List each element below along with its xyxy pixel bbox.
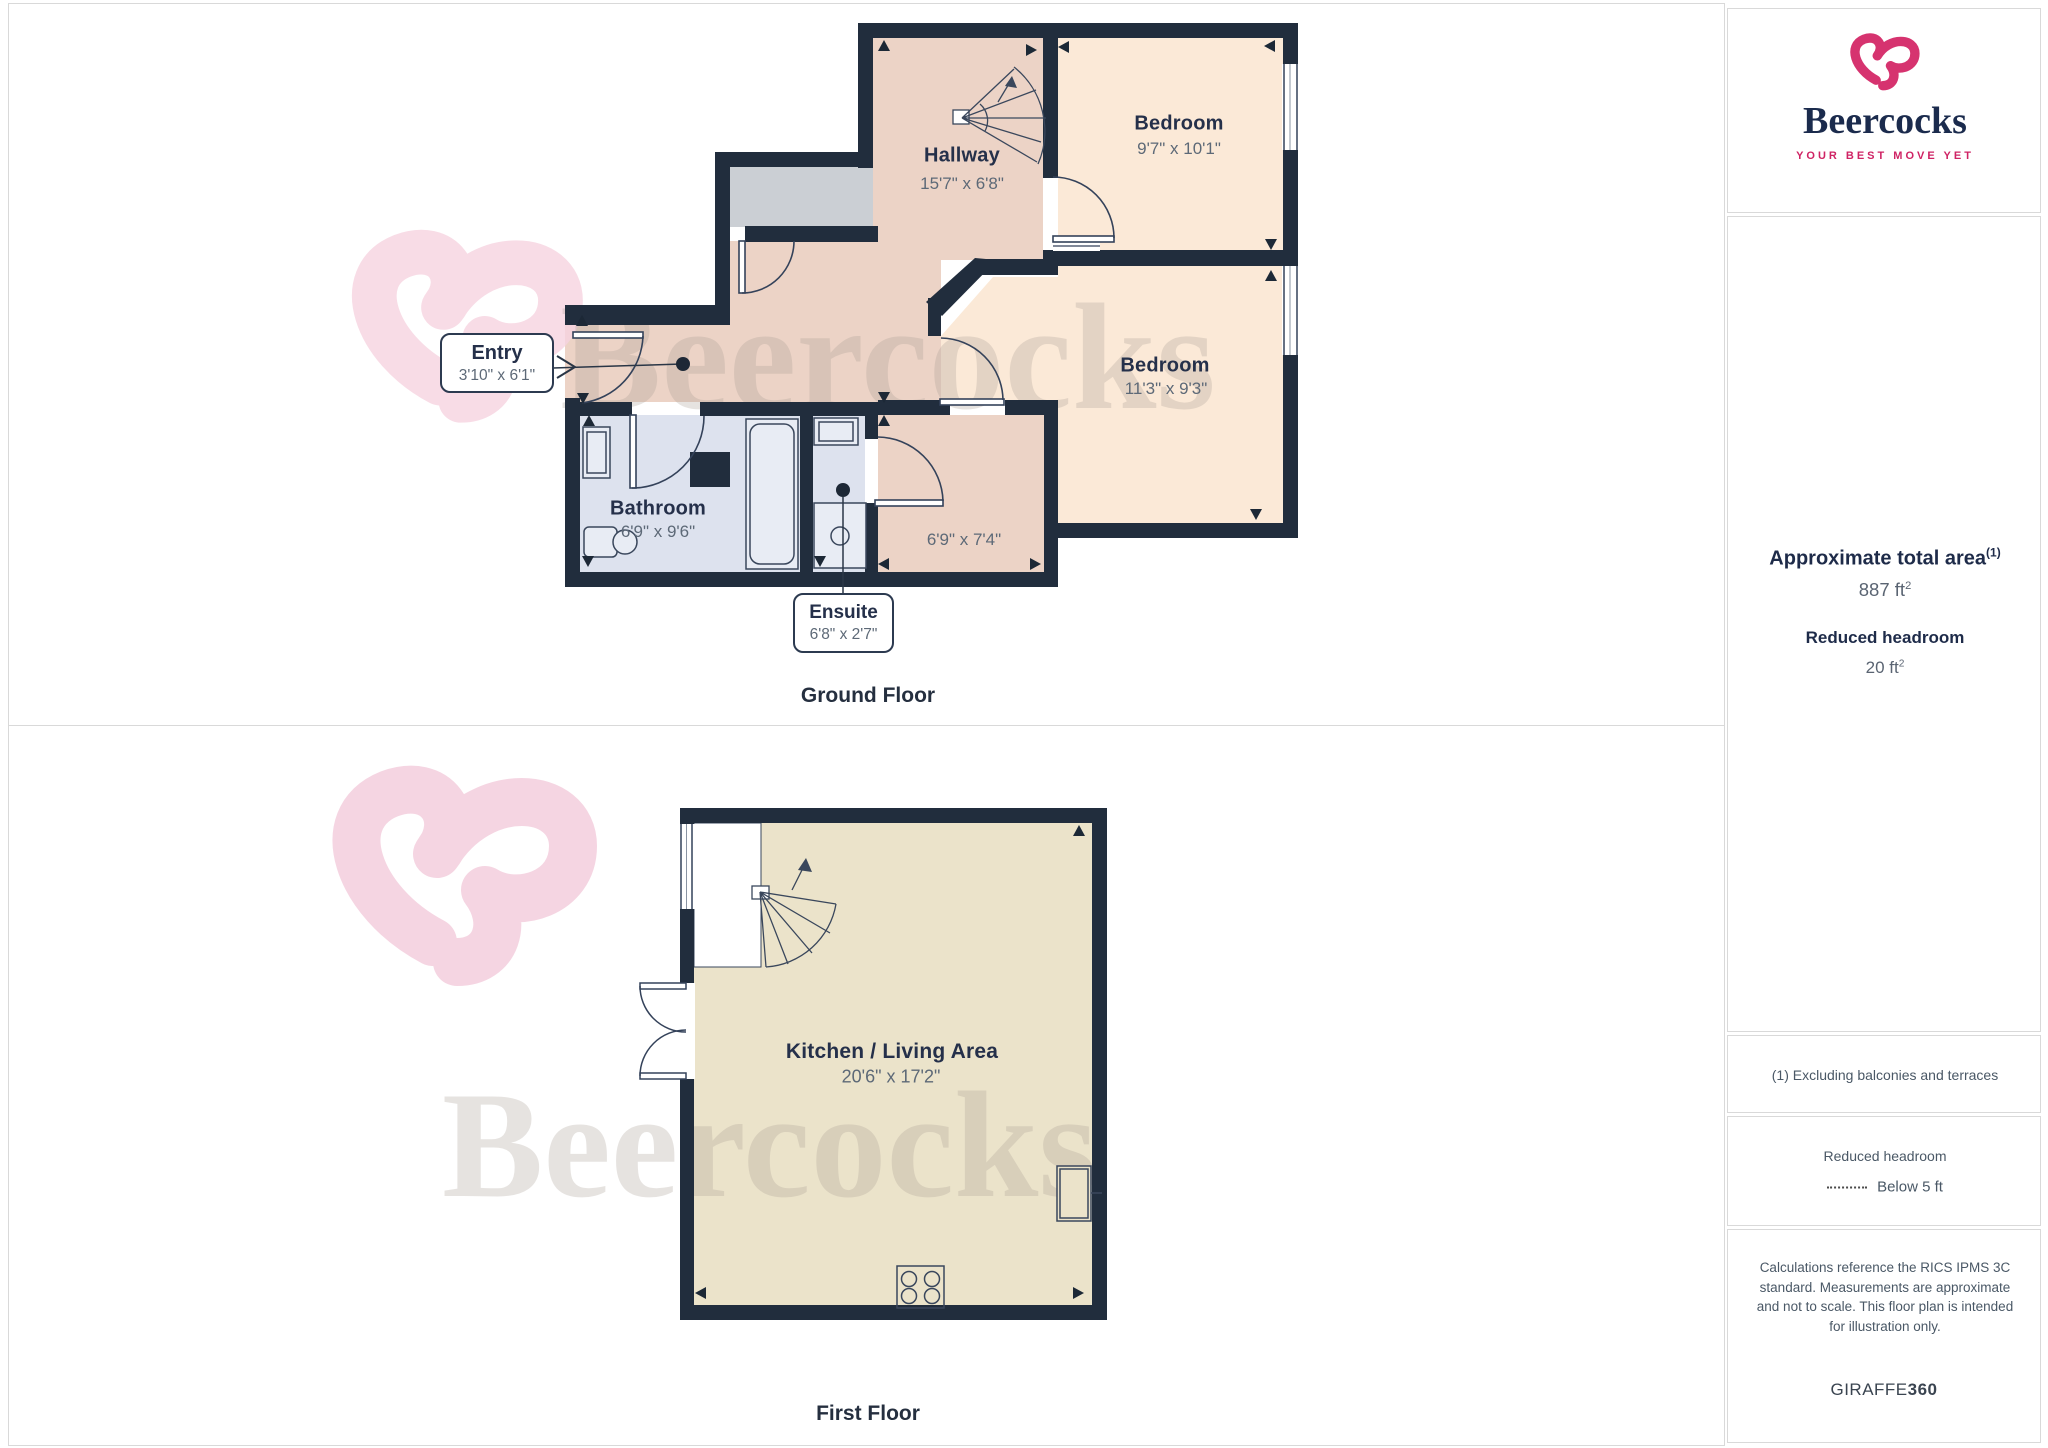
watermark-heart-icon bbox=[357, 790, 573, 962]
reduced-headroom-title: Reduced headroom bbox=[1806, 628, 1965, 648]
entry-callout: Entry 3'10" x 6'1" bbox=[440, 333, 554, 393]
lobby-dims: 6'9" x 7'4" bbox=[927, 530, 1001, 550]
entry-anchor-dot bbox=[676, 357, 690, 371]
first-floor-title: First Floor bbox=[816, 1402, 920, 1426]
total-area-value: 887 ft2 bbox=[1859, 579, 1911, 601]
toilet-icon bbox=[584, 527, 617, 557]
legend-row: Below 5 ft bbox=[1827, 1179, 1943, 1196]
sidebar-logo-panel: Beercocks YOUR BEST MOVE YET bbox=[1727, 8, 2041, 213]
entry-callout-dims: 3'10" x 6'1" bbox=[459, 366, 535, 385]
floorplan-page: { "brand": { "name": "Beercocks", "tagli… bbox=[0, 0, 2048, 1448]
hallway-label: Hallway bbox=[924, 145, 1000, 168]
ground-floor-plan: Beercocks bbox=[374, 23, 1299, 593]
hallway-dims: 15'7" x 6'8" bbox=[920, 174, 1004, 194]
ensuite-callout: Ensuite 6'8" x 2'7" bbox=[793, 593, 894, 653]
footnote-text: (1) Excluding balconies and terraces bbox=[1772, 1067, 1998, 1083]
bedroom2-dims: 11'3" x 9'3" bbox=[1125, 379, 1208, 399]
watermark-text: Beercocks bbox=[560, 273, 1216, 441]
brand-tagline: YOUR BEST MOVE YET bbox=[1796, 150, 1974, 162]
stairwell bbox=[694, 823, 761, 967]
bathtub-icon bbox=[746, 419, 798, 569]
beercocks-logo-icon bbox=[1839, 27, 1931, 99]
legend-title: Reduced headroom bbox=[1824, 1148, 1947, 1164]
sidebar-footnote-panel: (1) Excluding balconies and terraces bbox=[1727, 1035, 2041, 1113]
legend-label: Below 5 ft bbox=[1877, 1179, 1943, 1196]
giraffe360-credit: GIRAFFE360 bbox=[1830, 1380, 1937, 1400]
kitchen-living-dims: 20'6" x 17'2" bbox=[842, 1067, 941, 1088]
bathroom-dims: 6'9" x 9'6" bbox=[621, 522, 695, 542]
sidebar-legend-panel: Reduced headroom Below 5 ft bbox=[1727, 1116, 2041, 1226]
ensuite-callout-label: Ensuite bbox=[809, 601, 878, 625]
bedroom1-dims: 9'7" x 10'1" bbox=[1137, 139, 1221, 159]
ensuite-anchor-dot bbox=[836, 483, 850, 497]
reduced-headroom-value: 20 ft2 bbox=[1866, 658, 1905, 678]
ground-floor-title: Ground Floor bbox=[801, 684, 935, 708]
bedroom2-label: Bedroom bbox=[1120, 355, 1209, 378]
appliance-icon bbox=[1057, 1166, 1091, 1221]
total-area-title: Approximate total area(1) bbox=[1769, 546, 2000, 571]
footnote-marker: (1) bbox=[1986, 546, 2001, 560]
bedroom1-label: Bedroom bbox=[1134, 113, 1223, 136]
watermark-text: Beercocks bbox=[442, 1061, 1098, 1229]
bathroom-label: Bathroom bbox=[610, 498, 706, 521]
kitchen-living-label: Kitchen / Living Area bbox=[786, 1040, 998, 1064]
entry-callout-label: Entry bbox=[471, 341, 522, 366]
dashed-line-icon bbox=[1827, 1186, 1867, 1188]
ensuite-callout-dims: 6'8" x 2'7" bbox=[810, 625, 878, 644]
brand-wordmark: Beercocks bbox=[1803, 99, 1967, 143]
disclaimer-text: Calculations reference the RICS IPMS 3C … bbox=[1754, 1258, 2016, 1336]
sidebar-area-panel: Approximate total area(1) 887 ft2 Reduce… bbox=[1727, 216, 2041, 1032]
